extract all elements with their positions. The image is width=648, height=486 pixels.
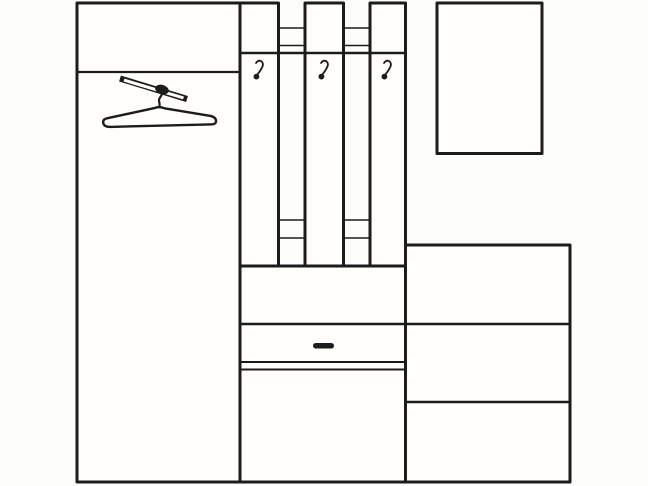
coat-panel-1 xyxy=(240,3,279,266)
coat-hook-1-ball xyxy=(254,74,260,80)
coat-hook-2-ball xyxy=(319,74,325,80)
drawer-handle xyxy=(313,343,334,349)
furniture-drawing-canvas xyxy=(0,0,648,486)
mirror-frame xyxy=(437,3,542,154)
wardrobe-body xyxy=(77,3,241,482)
furniture-drawing xyxy=(0,0,648,486)
coat-panel-3 xyxy=(370,3,406,266)
coat-hook-3-ball xyxy=(382,74,388,80)
lower-cabinet-body xyxy=(240,266,406,482)
right-unit-body xyxy=(406,245,571,482)
coat-panel-2 xyxy=(305,3,344,266)
